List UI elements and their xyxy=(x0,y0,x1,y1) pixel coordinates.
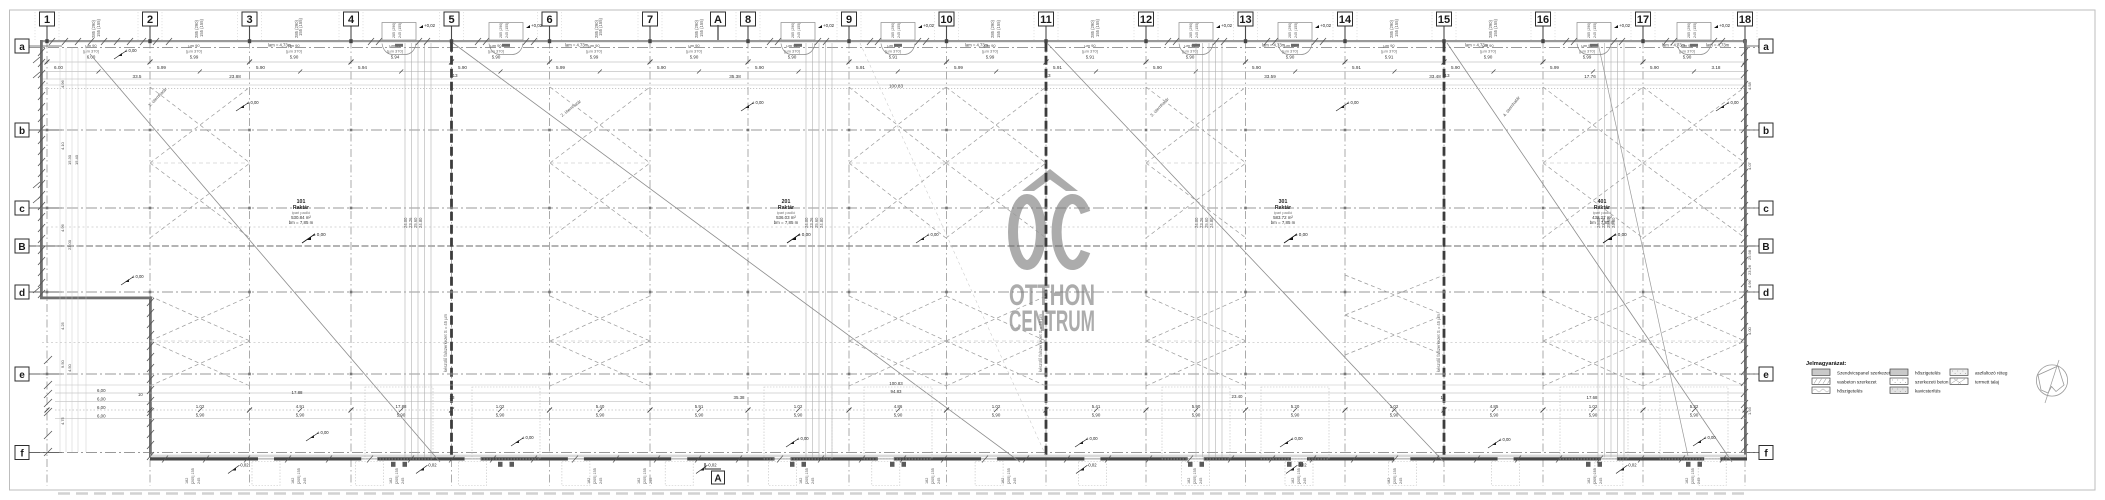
svg-text:245: 245 xyxy=(1013,478,1017,484)
svg-text:14: 14 xyxy=(1339,14,1352,26)
svg-text:182: 182 xyxy=(185,478,189,484)
svg-text:± 0,00: ± 0,00 xyxy=(797,436,809,441)
svg-text:[µm 370]: [µm 370] xyxy=(1480,49,1496,54)
svg-text:± 0,00: ± 0,00 xyxy=(1727,100,1739,105)
svg-text:10: 10 xyxy=(138,392,143,397)
svg-text:[205] 155: [205] 155 xyxy=(297,468,301,484)
svg-text:245: 245 xyxy=(1697,478,1701,484)
svg-text:25.98: 25.98 xyxy=(1747,249,1752,260)
svg-text:285 (290): 285 (290) xyxy=(392,23,396,38)
svg-text:µm 90: µm 90 xyxy=(688,43,700,48)
svg-text:+0,02: +0,02 xyxy=(923,23,935,28)
svg-text:100.83: 100.83 xyxy=(889,381,903,386)
svg-text:5,90: 5,90 xyxy=(894,413,903,418)
svg-text:155 (155): 155 (155) xyxy=(1493,18,1498,37)
svg-text:285 (290): 285 (290) xyxy=(499,23,503,38)
svg-text:+0,02: +0,02 xyxy=(1221,23,1233,28)
svg-text:182: 182 xyxy=(799,478,803,484)
svg-text:± 0,00: ± 0,00 xyxy=(247,100,259,105)
svg-text:245: 245 xyxy=(599,478,603,484)
svg-text:12: 12 xyxy=(1140,14,1152,26)
svg-text:9: 9 xyxy=(846,14,852,26)
svg-text:d: d xyxy=(19,288,25,299)
svg-text:[µm 370]: [µm 370] xyxy=(686,49,702,54)
svg-text:6: 6 xyxy=(546,14,552,26)
svg-text:13: 13 xyxy=(1239,14,1251,26)
svg-text:+0,02: +0,02 xyxy=(1719,23,1731,28)
svg-text:lam = 4,73m: lam = 4,73m xyxy=(1465,43,1489,48)
svg-text:245 (155): 245 (155) xyxy=(1693,23,1697,38)
svg-text:5.32: 5.32 xyxy=(1690,404,1699,409)
svg-text:285 (290): 285 (290) xyxy=(990,19,995,38)
svg-text:100.83: 100.83 xyxy=(889,84,903,89)
svg-text:285 (290): 285 (290) xyxy=(791,23,795,38)
svg-text:285 (290): 285 (290) xyxy=(1288,23,1292,38)
svg-text:5,90: 5,90 xyxy=(1291,413,1300,418)
svg-text:5,90: 5,90 xyxy=(596,413,605,418)
svg-text:6,00: 6,00 xyxy=(97,388,106,393)
svg-text:13: 13 xyxy=(1441,395,1446,400)
svg-text:± 0,00: ± 0,00 xyxy=(1499,437,1511,442)
svg-text:155 (155): 155 (155) xyxy=(1394,18,1399,37)
svg-text:5.90: 5.90 xyxy=(290,55,299,60)
svg-text:245: 245 xyxy=(649,478,653,484)
svg-text:± 0,00: ± 0,00 xyxy=(125,48,137,53)
svg-text:182: 182 xyxy=(1387,478,1391,484)
svg-text:µm 90: µm 90 xyxy=(1383,43,1395,48)
svg-text:5,90: 5,90 xyxy=(794,413,803,418)
svg-text:[205] 155: [205] 155 xyxy=(643,468,647,484)
svg-text:6.00: 6.00 xyxy=(54,65,63,70)
svg-text:vasbeton szerkezet: vasbeton szerkezet xyxy=(1837,379,1877,384)
svg-text:245 (155): 245 (155) xyxy=(505,23,509,38)
svg-text:17.88: 17.88 xyxy=(292,390,304,395)
svg-text:5.90: 5.90 xyxy=(1186,55,1195,60)
svg-text:± 0,00: ± 0,00 xyxy=(752,100,764,105)
svg-text:a: a xyxy=(19,42,25,53)
svg-text:5.90: 5.90 xyxy=(690,55,699,60)
svg-text:hőszigetelés: hőszigetelés xyxy=(1837,388,1863,393)
svg-text:5,90: 5,90 xyxy=(992,413,1001,418)
svg-text:± 0,00: ± 0,00 xyxy=(132,274,144,279)
svg-text:245 (155): 245 (155) xyxy=(398,23,402,38)
svg-text:+0,02: +0,02 xyxy=(531,23,543,28)
svg-text:± 0,00: ± 0,00 xyxy=(1295,232,1308,237)
svg-text:24.80: 24.80 xyxy=(418,217,423,228)
svg-text:[205] 155: [205] 155 xyxy=(1297,468,1301,484)
svg-text:µm 90: µm 90 xyxy=(1084,43,1096,48)
svg-text:[µm 370]: [µm 370] xyxy=(83,49,99,54)
svg-text:182: 182 xyxy=(587,478,591,484)
svg-text:[µm 370]: [µm 370] xyxy=(1679,49,1695,54)
svg-text:182: 182 xyxy=(1291,478,1295,484)
svg-text:15.40: 15.40 xyxy=(74,154,79,165)
svg-text:5,90: 5,90 xyxy=(196,413,205,418)
svg-text:[205] 155: [205] 155 xyxy=(1007,468,1011,484)
svg-text:4.91: 4.91 xyxy=(296,404,305,409)
svg-text:b: b xyxy=(19,126,25,137)
svg-text:hőszigetelés: hőszigetelés xyxy=(1915,370,1941,375)
svg-text:szerkezeti beton: szerkezeti beton xyxy=(1915,379,1949,384)
svg-text:155 (155): 155 (155) xyxy=(598,17,603,36)
svg-text:16: 16 xyxy=(1537,14,1549,26)
svg-text:35.38: 35.38 xyxy=(734,395,746,400)
svg-text:4.75: 4.75 xyxy=(60,416,65,425)
svg-text:23.88: 23.88 xyxy=(229,74,241,79)
svg-text:245: 245 xyxy=(937,478,941,484)
svg-text:23.00: 23.00 xyxy=(67,239,72,250)
svg-text:-0,02: -0,02 xyxy=(1297,463,1307,468)
svg-text:± 0,00: ± 0,00 xyxy=(317,430,329,435)
svg-text:285 (290): 285 (290) xyxy=(891,23,895,38)
svg-text:[µm 370]: [µm 370] xyxy=(1579,49,1595,54)
svg-text:5.94: 5.94 xyxy=(358,65,367,70)
svg-text:4.96: 4.96 xyxy=(60,223,65,232)
svg-text:6,00: 6,00 xyxy=(97,414,106,419)
svg-text:1.02: 1.02 xyxy=(992,404,1001,409)
svg-text:182: 182 xyxy=(291,478,295,484)
svg-text:[µm 370]: [µm 370] xyxy=(885,49,901,54)
svg-text:13: 13 xyxy=(452,73,458,78)
svg-text:-0,02: -0,02 xyxy=(707,463,717,468)
svg-text:6,00: 6,00 xyxy=(97,405,106,410)
svg-text:245: 245 xyxy=(303,478,307,484)
svg-text:lam = 4,73m: lam = 4,73m xyxy=(565,43,589,48)
svg-text:245 (155): 245 (155) xyxy=(897,23,901,38)
svg-text:± 0,00: ± 0,00 xyxy=(798,232,811,237)
svg-text:5,90: 5,90 xyxy=(1390,413,1399,418)
svg-text:µm 90: µm 90 xyxy=(85,43,97,48)
svg-text:182: 182 xyxy=(637,478,641,484)
svg-text:e: e xyxy=(19,370,25,381)
svg-text:5.99: 5.99 xyxy=(1583,55,1592,60)
svg-text:5.41: 5.41 xyxy=(1092,404,1101,409)
svg-text:5.99: 5.99 xyxy=(157,65,166,70)
svg-text:A: A xyxy=(714,473,721,484)
svg-text:5.90: 5.90 xyxy=(657,65,666,70)
svg-text:5.90: 5.90 xyxy=(1252,65,1261,70)
svg-text:c: c xyxy=(19,204,25,215)
svg-text:5.90: 5.90 xyxy=(788,55,797,60)
svg-text:Jelmagyarázat:: Jelmagyarázat: xyxy=(1806,361,1847,367)
svg-text:[205] 155: [205] 155 xyxy=(1193,468,1197,484)
svg-text:5.91: 5.91 xyxy=(1053,65,1062,70)
svg-text:a: a xyxy=(1763,42,1769,53)
svg-text:lam = 4,73m: lam = 4,73m xyxy=(965,43,989,48)
svg-text:1.02: 1.02 xyxy=(794,404,803,409)
svg-text:18: 18 xyxy=(1739,14,1751,26)
svg-text:5.90: 5.90 xyxy=(1451,65,1460,70)
svg-text:+0,02: +0,02 xyxy=(1619,23,1631,28)
svg-text:24.80: 24.80 xyxy=(819,217,824,228)
svg-text:245: 245 xyxy=(401,478,405,484)
svg-text:4.50: 4.50 xyxy=(67,363,72,372)
svg-text:182: 182 xyxy=(389,478,393,484)
svg-text:4.07: 4.07 xyxy=(1747,161,1752,170)
svg-text:µm 90: µm 90 xyxy=(490,43,502,48)
svg-text:c: c xyxy=(1763,204,1769,215)
svg-text:94.83: 94.83 xyxy=(891,389,903,394)
svg-text:5,90: 5,90 xyxy=(1092,413,1101,418)
svg-text:5.90: 5.90 xyxy=(755,65,764,70)
svg-text:155 (155): 155 (155) xyxy=(1095,18,1100,37)
svg-text:155 (155): 155 (155) xyxy=(96,18,101,37)
svg-text:5,90: 5,90 xyxy=(695,413,704,418)
svg-text:245: 245 xyxy=(811,478,815,484)
svg-text:23.40: 23.40 xyxy=(1232,394,1244,399)
svg-text:5.40: 5.40 xyxy=(596,404,605,409)
svg-text:[205] 155: [205] 155 xyxy=(805,468,809,484)
svg-text:-0,02: -0,02 xyxy=(239,463,249,468)
svg-text:± 0,00: ± 0,00 xyxy=(1704,435,1716,440)
svg-text:+0,02: +0,02 xyxy=(823,23,835,28)
svg-text:5.90: 5.90 xyxy=(458,65,467,70)
svg-text:[205] 155: [205] 155 xyxy=(1691,468,1695,484)
svg-text:[µm 370]: [µm 370] xyxy=(1282,49,1298,54)
svg-text:3.18: 3.18 xyxy=(1712,65,1721,70)
svg-text:5.90: 5.90 xyxy=(1484,55,1493,60)
svg-text:3: 3 xyxy=(246,14,252,26)
svg-text:5.99: 5.99 xyxy=(590,55,599,60)
svg-text:5.99: 5.99 xyxy=(556,65,565,70)
svg-text:5.91: 5.91 xyxy=(695,404,704,409)
svg-text:5,90: 5,90 xyxy=(496,413,505,418)
svg-text:± 0,00: ± 0,00 xyxy=(522,435,534,440)
svg-text:B: B xyxy=(1762,242,1769,253)
svg-text:4: 4 xyxy=(348,14,355,26)
svg-text:A: A xyxy=(714,14,722,26)
svg-text:kavicsterítés: kavicsterítés xyxy=(1915,388,1941,393)
svg-text:± 0,00: ± 0,00 xyxy=(927,232,939,237)
svg-text:+0,02: +0,02 xyxy=(424,23,436,28)
svg-text:5: 5 xyxy=(448,14,454,26)
svg-text:B: B xyxy=(18,242,25,253)
svg-text:5,90: 5,90 xyxy=(397,413,406,418)
svg-text:4.58: 4.58 xyxy=(1747,81,1752,90)
svg-text:5.90: 5.90 xyxy=(256,65,265,70)
svg-text:[205] 155: [205] 155 xyxy=(593,468,597,484)
svg-text:µm 90: µm 90 xyxy=(588,43,600,48)
svg-text:33.59: 33.59 xyxy=(1264,74,1276,79)
svg-text:± 0,00: ± 0,00 xyxy=(313,232,326,237)
svg-text:182: 182 xyxy=(1685,478,1689,484)
svg-text:-0,02: -0,02 xyxy=(1627,463,1637,468)
svg-text:182: 182 xyxy=(1587,478,1591,484)
svg-text:[205] 155: [205] 155 xyxy=(931,468,935,484)
svg-text:5,90: 5,90 xyxy=(1192,413,1201,418)
svg-text:245 (155): 245 (155) xyxy=(797,23,801,38)
svg-text:lam = 4,73m: lam = 4,73m xyxy=(1662,43,1686,48)
svg-text:[µm 370]: [µm 370] xyxy=(286,49,302,54)
svg-text:4.00: 4.00 xyxy=(1747,326,1752,335)
svg-text:15.30: 15.30 xyxy=(67,154,72,165)
svg-text:5.20: 5.20 xyxy=(1291,404,1300,409)
svg-text:245: 245 xyxy=(1399,478,1403,484)
svg-text:155 (155): 155 (155) xyxy=(199,18,204,37)
svg-text:182: 182 xyxy=(925,478,929,484)
svg-text:4.96: 4.96 xyxy=(60,79,65,88)
svg-text:[µm 370]: [µm 370] xyxy=(1082,49,1098,54)
svg-text:± 0,00: ± 0,00 xyxy=(1614,232,1627,237)
svg-text:5.90: 5.90 xyxy=(492,55,501,60)
svg-text:245 (155): 245 (155) xyxy=(1294,23,1298,38)
svg-text:245 (155): 245 (155) xyxy=(1593,23,1597,38)
svg-text:285 (290): 285 (290) xyxy=(1587,23,1591,38)
svg-text:± 0,00: ± 0,00 xyxy=(1291,436,1303,441)
svg-text:4.10: 4.10 xyxy=(60,141,65,150)
svg-text:15: 15 xyxy=(1438,14,1450,26)
svg-text:bm = 7,85 m: bm = 7,85 m xyxy=(289,220,314,225)
svg-text:285 (290): 285 (290) xyxy=(1687,23,1691,38)
svg-text:lam = 4,73m: lam = 4,73m xyxy=(1706,43,1730,48)
svg-text:e: e xyxy=(1763,370,1769,381)
svg-text:4.86: 4.86 xyxy=(894,404,903,409)
svg-text:5.91: 5.91 xyxy=(1352,65,1361,70)
svg-text:5.90: 5.90 xyxy=(1192,404,1201,409)
svg-text:bm = 7,85 m: bm = 7,85 m xyxy=(1590,220,1615,225)
svg-text:33.48: 33.48 xyxy=(1429,74,1441,79)
svg-text:µm 90: µm 90 xyxy=(188,43,200,48)
svg-text:5,90: 5,90 xyxy=(1490,413,1499,418)
svg-text:1: 1 xyxy=(44,14,50,26)
svg-text:17: 17 xyxy=(1637,14,1649,26)
svg-text:9.50: 9.50 xyxy=(60,359,65,368)
svg-text:[µm 370]: [µm 370] xyxy=(1381,49,1397,54)
svg-text:17.88: 17.88 xyxy=(396,404,408,409)
svg-text:készülő falszerkezet S = 45 µ: készülő falszerkezet S = 45 µm xyxy=(443,313,448,372)
svg-text:285 (290): 285 (290) xyxy=(1189,23,1193,38)
svg-text:d: d xyxy=(1763,288,1769,299)
svg-text:155 (155): 155 (155) xyxy=(298,17,303,36)
svg-text:5.91: 5.91 xyxy=(1385,55,1394,60)
svg-text:[205] 155: [205] 155 xyxy=(1393,468,1397,484)
svg-text:5.94: 5.94 xyxy=(391,55,400,60)
svg-text:4.25: 4.25 xyxy=(60,321,65,330)
svg-text:155 (155): 155 (155) xyxy=(699,18,704,37)
svg-text:10: 10 xyxy=(940,14,952,26)
svg-text:[µm 370]: [µm 370] xyxy=(387,49,403,54)
svg-text:± 0,00: ± 0,00 xyxy=(1347,100,1359,105)
svg-text:4.96: 4.96 xyxy=(1747,279,1752,288)
svg-text:245: 245 xyxy=(197,478,201,484)
svg-text:[205] 155: [205] 155 xyxy=(395,468,399,484)
svg-text:lam = 4,73m: lam = 4,73m xyxy=(268,43,292,48)
svg-text:23.26: 23.26 xyxy=(1747,264,1752,275)
svg-text:4.85: 4.85 xyxy=(1490,404,1499,409)
svg-text:245: 245 xyxy=(1599,478,1603,484)
svg-text:17.76: 17.76 xyxy=(1584,74,1596,79)
svg-text:[µm 370]: [µm 370] xyxy=(186,49,202,54)
svg-text:8: 8 xyxy=(745,14,751,26)
svg-text:-0,02: -0,02 xyxy=(427,463,437,468)
svg-text:5.90: 5.90 xyxy=(1153,65,1162,70)
svg-text:182: 182 xyxy=(1187,478,1191,484)
svg-text:5.90: 5.90 xyxy=(1286,55,1295,60)
svg-text:5.99: 5.99 xyxy=(190,55,199,60)
svg-text:245: 245 xyxy=(1303,478,1307,484)
svg-text:[205] 155: [205] 155 xyxy=(191,468,195,484)
svg-text:5.99: 5.99 xyxy=(1550,65,1559,70)
svg-text:5.90: 5.90 xyxy=(1650,65,1659,70)
svg-text:[µm 370]: [µm 370] xyxy=(982,49,998,54)
svg-text:1.02: 1.02 xyxy=(196,404,205,409)
svg-text:17.68: 17.68 xyxy=(1587,395,1599,400)
svg-text:termett talaj: termett talaj xyxy=(1975,379,1999,384)
svg-text:13: 13 xyxy=(450,395,455,400)
svg-text:[µm 370]: [µm 370] xyxy=(586,49,602,54)
svg-text:1.02: 1.02 xyxy=(1390,404,1399,409)
svg-text:b: b xyxy=(1763,126,1769,137)
svg-text:5,90: 5,90 xyxy=(296,413,305,418)
svg-text:5.99: 5.99 xyxy=(954,65,963,70)
svg-text:5.90: 5.90 xyxy=(1683,55,1692,60)
svg-text:35.38: 35.38 xyxy=(729,74,741,79)
svg-text:aszfaltozó réteg: aszfaltozó réteg xyxy=(1975,370,2008,375)
svg-text:5.99: 5.99 xyxy=(986,55,995,60)
svg-text:-0,02: -0,02 xyxy=(1087,463,1097,468)
svg-text:1.02: 1.02 xyxy=(1589,404,1598,409)
svg-text:1.02: 1.02 xyxy=(496,404,505,409)
svg-text:+0,02: +0,02 xyxy=(1320,23,1332,28)
svg-text:5,90: 5,90 xyxy=(1589,413,1598,418)
svg-text:Szendvicspanel szerkezet: Szendvicspanel szerkezet xyxy=(1837,370,1891,375)
svg-text:CENTRUM: CENTRUM xyxy=(1009,305,1095,338)
svg-text:készülő falszerkezet S = 45 µ: készülő falszerkezet S = 45 µm xyxy=(1436,313,1441,372)
svg-text:11: 11 xyxy=(1040,14,1052,26)
svg-text:± 0,00: ± 0,00 xyxy=(1086,436,1098,441)
svg-text:33.5: 33.5 xyxy=(133,74,142,79)
svg-text:2: 2 xyxy=(147,14,153,26)
svg-text:7: 7 xyxy=(647,14,653,26)
svg-text:155 (155): 155 (155) xyxy=(996,19,1001,38)
svg-text:6,00: 6,00 xyxy=(97,397,106,402)
svg-text:182: 182 xyxy=(1001,478,1005,484)
svg-text:bm = 7,85 m: bm = 7,85 m xyxy=(1271,220,1296,225)
svg-text:5.91: 5.91 xyxy=(889,55,898,60)
svg-text:5,90: 5,90 xyxy=(1690,413,1699,418)
svg-text:[205] 155: [205] 155 xyxy=(1593,468,1597,484)
svg-text:bm = 7,85 m: bm = 7,85 m xyxy=(774,220,799,225)
svg-text:5.91: 5.91 xyxy=(856,65,865,70)
svg-text:245: 245 xyxy=(1199,478,1203,484)
svg-text:1.93: 1.93 xyxy=(1747,406,1752,415)
svg-text:245 (155): 245 (155) xyxy=(1195,23,1199,38)
svg-text:5.91: 5.91 xyxy=(1086,55,1095,60)
